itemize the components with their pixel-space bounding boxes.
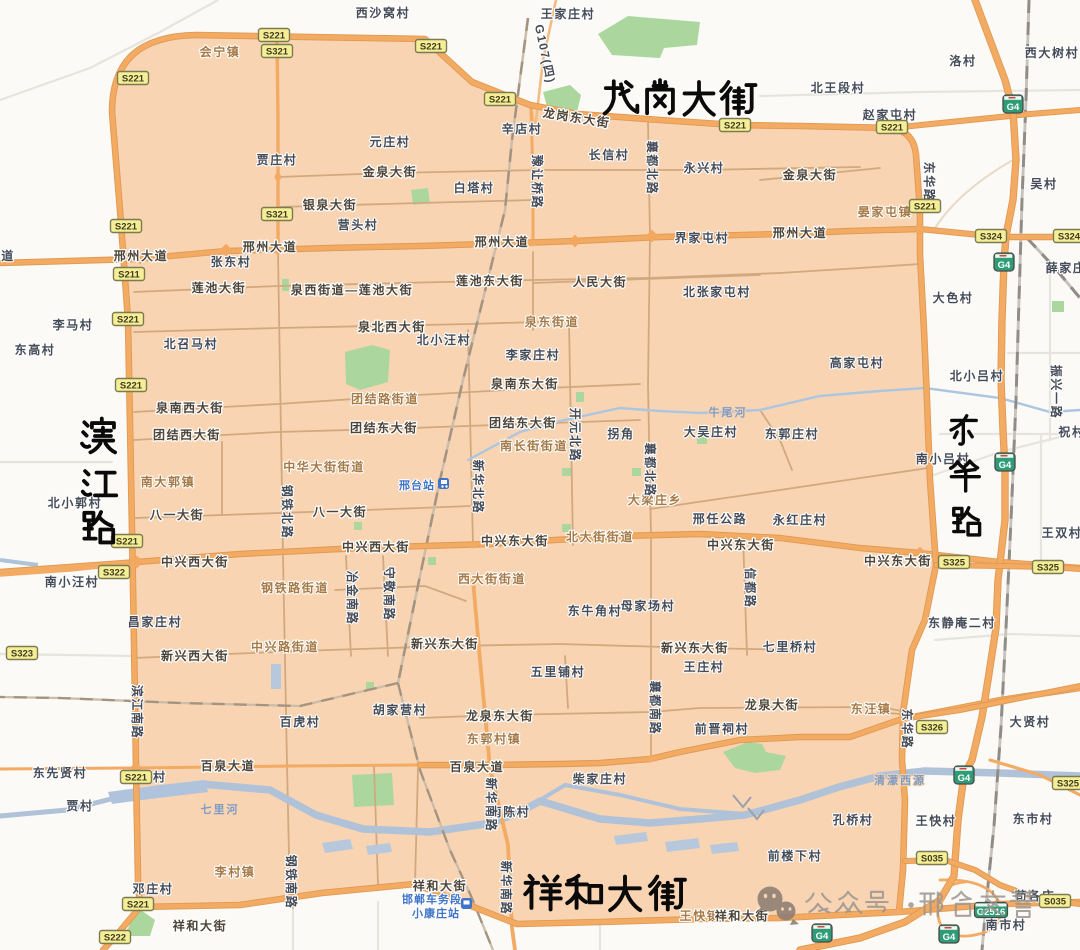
svg-text:S221: S221 (115, 221, 138, 232)
svg-text:中兴东大街: 中兴东大街 (707, 537, 775, 552)
svg-text:北王段村: 北王段村 (811, 80, 865, 95)
svg-text:S221: S221 (116, 536, 139, 547)
svg-text:前晋祠村: 前晋祠村 (695, 721, 749, 736)
svg-text:邢台站: 邢台站 (398, 478, 435, 492)
svg-text:北召马村: 北召马村 (164, 336, 218, 351)
svg-text:北小郭村: 北小郭村 (48, 495, 102, 510)
svg-text:S221: S221 (489, 94, 512, 105)
svg-text:东郭庄村: 东郭庄村 (765, 426, 819, 441)
svg-text:金泉大街: 金泉大街 (362, 164, 417, 179)
svg-text:胡家营村: 胡家营村 (373, 702, 427, 717)
svg-text:白塔村: 白塔村 (454, 180, 495, 195)
svg-text:八一大街: 八一大街 (149, 507, 204, 522)
svg-text:大吴庄村: 大吴庄村 (684, 424, 738, 439)
svg-text:牛尾河: 牛尾河 (709, 405, 748, 419)
svg-text:滨江南路: 滨江南路 (130, 685, 145, 739)
svg-text:守敬南路: 守敬南路 (382, 567, 397, 621)
svg-text:S221: S221 (881, 122, 904, 133)
svg-text:豫让桥路: 豫让桥路 (530, 155, 545, 209)
svg-text:团结东大街: 团结东大街 (489, 415, 557, 430)
svg-text:清濛西源: 清濛西源 (874, 773, 926, 787)
svg-text:S221: S221 (127, 899, 150, 910)
svg-text:中华大街街道: 中华大街街道 (283, 459, 365, 474)
svg-text:S325: S325 (943, 557, 966, 568)
svg-text:吴村: 吴村 (1030, 176, 1057, 191)
svg-text:贾村: 贾村 (66, 798, 93, 813)
svg-text:赵家屯村: 赵家屯村 (862, 107, 917, 122)
svg-text:新兴东大街: 新兴东大街 (411, 636, 479, 651)
svg-text:龙泉大街: 龙泉大街 (745, 697, 799, 712)
svg-text:元庄村: 元庄村 (370, 134, 411, 149)
svg-text:东市村: 东市村 (1013, 811, 1054, 826)
svg-text:G4: G4 (998, 260, 1011, 271)
svg-text:北张家屯村: 北张家屯村 (683, 284, 751, 299)
svg-text:王快村: 王快村 (916, 813, 957, 828)
svg-text:S326: S326 (921, 722, 943, 733)
svg-text:泉南西大街: 泉南西大街 (156, 400, 224, 415)
svg-text:新华南路: 新华南路 (484, 778, 499, 832)
svg-text:东先贤村: 东先贤村 (33, 765, 87, 780)
svg-text:新华南路: 新华南路 (499, 861, 514, 915)
svg-text:团结东大街: 团结东大街 (350, 420, 418, 435)
svg-text:南大郭镇: 南大郭镇 (141, 474, 195, 489)
svg-text:薛家庄: 薛家庄 (1046, 260, 1080, 275)
svg-text:高家屯村: 高家屯村 (830, 355, 884, 370)
svg-text:邢州大道: 邢州大道 (475, 234, 529, 249)
svg-text:营头村: 营头村 (338, 217, 379, 232)
svg-text:百泉大道: 百泉大道 (201, 758, 255, 773)
svg-text:东静庵二村: 东静庵二村 (928, 615, 996, 630)
svg-text:人民大街: 人民大街 (573, 274, 627, 289)
svg-text:八一大街: 八一大街 (312, 504, 367, 519)
svg-text:G4: G4 (943, 932, 956, 943)
svg-text:母家场村: 母家场村 (621, 598, 675, 613)
svg-text:祥和大街: 祥和大街 (173, 918, 227, 933)
svg-text:襄都北路: 襄都北路 (643, 442, 658, 497)
svg-text:G4: G4 (999, 460, 1012, 471)
svg-text:前楼下村: 前楼下村 (768, 848, 822, 863)
svg-text:王家庄村: 王家庄村 (541, 6, 595, 21)
svg-text:道: 道 (1, 248, 15, 263)
svg-text:界家屯村: 界家屯村 (675, 230, 729, 245)
svg-text:金泉大街: 金泉大街 (782, 167, 837, 182)
svg-text:S324: S324 (1058, 231, 1080, 242)
svg-text:S221: S221 (122, 73, 145, 84)
svg-text:东牛角村: 东牛角村 (568, 603, 622, 618)
svg-text:中兴西大街: 中兴西大街 (161, 554, 229, 569)
svg-text:中兴西大街: 中兴西大街 (342, 539, 410, 554)
svg-text:S323: S323 (11, 648, 33, 659)
svg-text:钢铁南路: 钢铁南路 (284, 855, 299, 909)
svg-text:泉东街道: 泉东街道 (525, 314, 579, 329)
svg-text:新华北路: 新华北路 (471, 460, 486, 514)
svg-text:东汪镇: 东汪镇 (851, 701, 892, 716)
svg-text:大色村: 大色村 (933, 290, 974, 305)
svg-text:百泉大道: 百泉大道 (450, 759, 504, 774)
svg-text:银泉大街: 银泉大街 (303, 197, 357, 212)
svg-text:S211: S211 (118, 269, 140, 280)
svg-text:南长街街道: 南长街街道 (500, 438, 568, 453)
svg-text:李家庄村: 李家庄村 (505, 347, 560, 362)
svg-text:晏家屯镇: 晏家屯镇 (858, 204, 912, 219)
svg-text:东华路: 东华路 (900, 709, 915, 750)
svg-text:S221: S221 (263, 30, 286, 41)
svg-text:S324: S324 (980, 231, 1003, 242)
svg-text:王庄村: 王庄村 (684, 659, 725, 674)
svg-text:S222: S222 (104, 932, 126, 943)
svg-text:G4: G4 (1007, 102, 1020, 113)
svg-text:G4: G4 (958, 773, 971, 784)
svg-text:钢铁路街道: 钢铁路街道 (261, 580, 329, 595)
svg-text:李马村: 李马村 (52, 317, 94, 332)
svg-text:昌家庄村: 昌家庄村 (128, 614, 182, 629)
svg-text:团结路街道: 团结路街道 (351, 391, 419, 406)
svg-text:辛店村: 辛店村 (502, 121, 543, 136)
svg-text:东高村: 东高村 (15, 342, 56, 357)
svg-text:G4: G4 (816, 931, 829, 942)
svg-text:长信村: 长信村 (589, 147, 630, 162)
svg-text:祥和大街: 祥和大街 (413, 878, 467, 893)
svg-text:张东村: 张东村 (211, 254, 252, 269)
svg-text:五里铺村: 五里铺村 (531, 664, 585, 679)
svg-text:邓庄村: 邓庄村 (133, 881, 174, 896)
svg-text:会宁镇: 会宁镇 (200, 44, 241, 59)
svg-text:中兴东大街: 中兴东大街 (864, 553, 932, 568)
svg-text:泉北西大街: 泉北西大街 (358, 319, 426, 334)
svg-text:S221: S221 (120, 380, 143, 391)
svg-text:冶金南路: 冶金南路 (345, 571, 360, 625)
svg-text:小康庄站: 小康庄站 (411, 906, 460, 920)
svg-text:S325: S325 (1037, 562, 1060, 573)
svg-text:开元北路: 开元北路 (568, 408, 583, 462)
svg-text:S221: S221 (117, 314, 140, 325)
svg-text:泉南东大街: 泉南东大街 (491, 376, 559, 391)
svg-text:团结西大街: 团结西大街 (153, 427, 221, 442)
svg-text:祝村: 祝村 (1058, 424, 1080, 439)
svg-text:百虎村: 百虎村 (280, 714, 321, 729)
svg-text:龙泉东大街: 龙泉东大街 (466, 708, 534, 723)
svg-text:S321: S321 (266, 209, 289, 220)
svg-text:邯郸车务段: 邯郸车务段 (402, 892, 462, 906)
svg-text:中兴路街道: 中兴路街道 (251, 639, 319, 654)
svg-text:洛村: 洛村 (949, 53, 976, 68)
svg-text:振兴一路: 振兴一路 (1049, 365, 1064, 419)
svg-text:襄都北路: 襄都北路 (645, 140, 660, 195)
svg-text:柴家庄村: 柴家庄村 (572, 771, 627, 786)
svg-text:永红庄村: 永红庄村 (772, 512, 827, 527)
svg-text:李村镇: 李村镇 (214, 864, 256, 879)
svg-text:S221: S221 (914, 201, 937, 212)
svg-text:王双村: 王双村 (1042, 525, 1080, 540)
svg-text:北小吕村: 北小吕村 (950, 368, 1004, 383)
svg-text:钢铁北路: 钢铁北路 (280, 485, 295, 539)
svg-text:北大街街道: 北大街街道 (566, 529, 634, 544)
svg-text:东华路: 东华路 (922, 162, 937, 203)
svg-text:东郭村镇: 东郭村镇 (467, 731, 521, 746)
svg-text:新兴西大街: 新兴西大街 (161, 648, 229, 663)
svg-text:泉西街道—莲池大街: 泉西街道—莲池大街 (291, 282, 413, 297)
svg-text:贾庄村: 贾庄村 (257, 152, 298, 167)
svg-text:莲池大街: 莲池大街 (192, 280, 246, 295)
svg-text:孔桥村: 孔桥村 (833, 812, 874, 827)
svg-text:邢任公路: 邢任公路 (693, 511, 747, 526)
svg-text:七里桥村: 七里桥村 (763, 639, 817, 654)
svg-text:大贤村: 大贤村 (1010, 714, 1051, 729)
svg-text:西沙窝村: 西沙窝村 (356, 5, 410, 20)
svg-text:永兴村: 永兴村 (683, 160, 725, 175)
svg-text:信都路: 信都路 (743, 568, 758, 609)
svg-text:莲池东大街: 莲池东大街 (456, 273, 524, 288)
svg-text:南小吕村: 南小吕村 (916, 451, 970, 466)
svg-text:S221: S221 (125, 772, 148, 783)
svg-text:S221: S221 (420, 41, 443, 52)
svg-text:西大树村: 西大树村 (1025, 45, 1079, 60)
svg-text:中兴东大街: 中兴东大街 (481, 533, 549, 548)
svg-text:邢州大道: 邢州大道 (243, 239, 297, 254)
svg-text:南市村: 南市村 (986, 917, 1027, 932)
svg-text:拐角: 拐角 (607, 426, 634, 441)
svg-text:西大街街道: 西大街街道 (458, 571, 526, 586)
svg-text:S322: S322 (103, 567, 125, 578)
svg-text:S321: S321 (266, 46, 289, 57)
svg-text:S035: S035 (921, 853, 944, 864)
svg-text:S035: S035 (1044, 896, 1067, 907)
svg-text:S221: S221 (724, 120, 747, 131)
svg-text:七里河: 七里河 (201, 802, 240, 816)
svg-text:邢州大道: 邢州大道 (114, 248, 168, 263)
svg-text:襄都南路: 襄都南路 (648, 680, 663, 735)
svg-text:S325: S325 (1057, 778, 1080, 789)
svg-text:邢州大道: 邢州大道 (773, 225, 827, 240)
svg-text:新兴东大街: 新兴东大街 (661, 640, 729, 655)
svg-text:北小汪村: 北小汪村 (417, 332, 471, 347)
svg-text:南小汪村: 南小汪村 (45, 574, 99, 589)
